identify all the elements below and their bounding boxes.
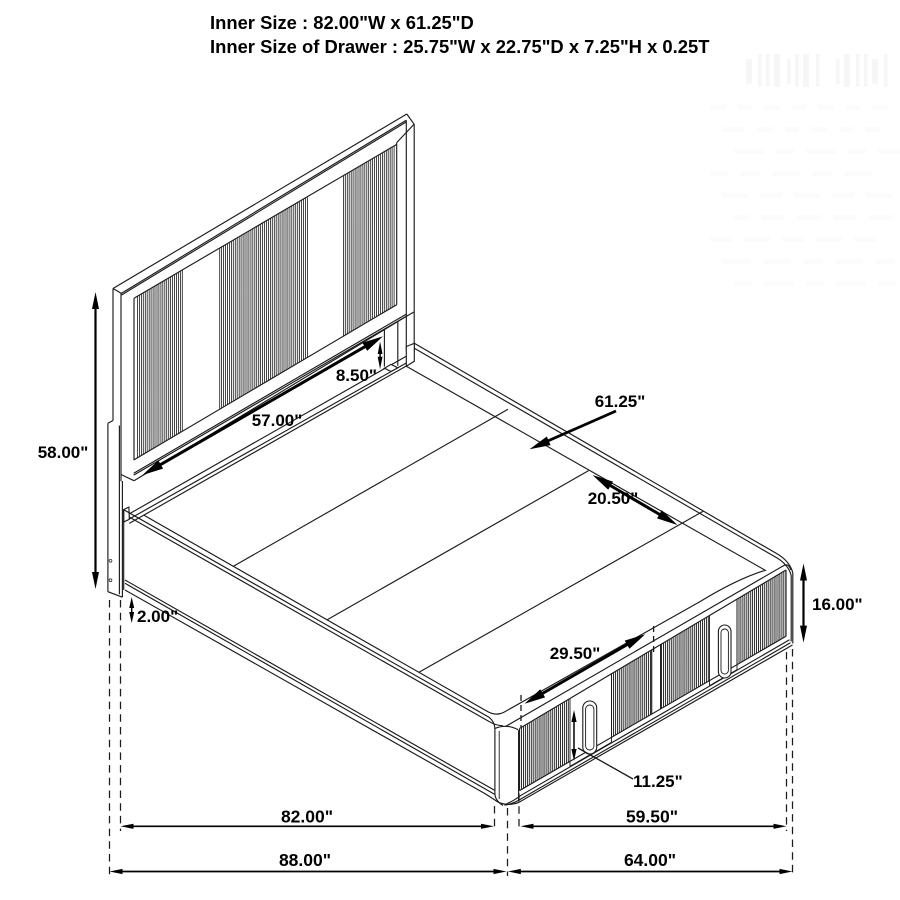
svg-text:82.00": 82.00"	[281, 807, 333, 827]
svg-text:58.00": 58.00"	[38, 443, 89, 462]
svg-text:88.00": 88.00"	[279, 850, 331, 870]
svg-text:2.00": 2.00"	[137, 607, 178, 626]
svg-text:Inner Size of Drawer : 25.75"W: Inner Size of Drawer : 25.75"W x 22.75"D…	[210, 36, 710, 57]
svg-text:20.50": 20.50"	[588, 489, 639, 508]
svg-text:8.50": 8.50"	[336, 366, 377, 385]
svg-text:64.00": 64.00"	[624, 850, 676, 870]
svg-text:59.50": 59.50"	[626, 807, 678, 827]
svg-text:11.25": 11.25"	[633, 772, 683, 791]
svg-text:Inner Size : 82.00"W x 61.25"D: Inner Size : 82.00"W x 61.25"D	[210, 12, 474, 33]
svg-text:29.50": 29.50"	[550, 644, 601, 663]
svg-text:61.25": 61.25"	[595, 392, 646, 411]
svg-text:16.00": 16.00"	[812, 595, 863, 614]
svg-text:57.00": 57.00"	[252, 411, 303, 430]
